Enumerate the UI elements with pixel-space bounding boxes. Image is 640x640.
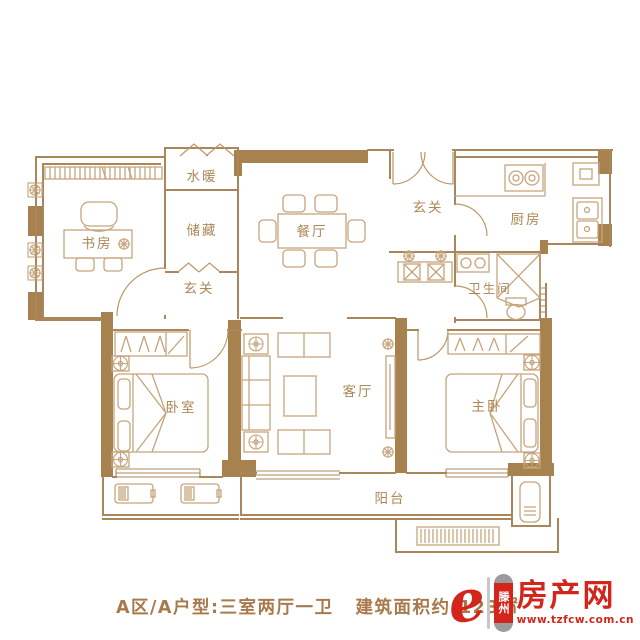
logo-e-mark-icon: e bbox=[444, 571, 488, 632]
water-heating-vent bbox=[180, 144, 234, 156]
hall-cabinet bbox=[398, 262, 452, 282]
sliding-door-balcony bbox=[256, 471, 340, 479]
caption-unit-info: A区/A户型:三室两厅一卫 bbox=[116, 598, 333, 618]
kitchen-counter bbox=[455, 163, 602, 242]
room-label-balcony: 阳台 bbox=[375, 491, 406, 507]
logo-city-name: 滕州 bbox=[494, 583, 513, 623]
plant-icon bbox=[382, 338, 394, 350]
doors bbox=[117, 144, 487, 368]
radiator-icon bbox=[28, 266, 42, 280]
ac-unit bbox=[181, 484, 221, 503]
plant-icon bbox=[118, 238, 130, 250]
bedroom-wardrobe bbox=[115, 332, 187, 356]
lamp-icon bbox=[114, 453, 128, 467]
radiator-icon bbox=[28, 243, 42, 257]
tv-cabinet bbox=[386, 356, 395, 438]
lamp-icon bbox=[525, 454, 539, 468]
logo-site-name: 房产网 bbox=[517, 580, 616, 613]
master-wardrobe bbox=[448, 334, 540, 354]
lamp-icon bbox=[249, 337, 263, 351]
lamp-icon bbox=[249, 435, 263, 449]
room-label-bathroom: 卫生间 bbox=[468, 281, 512, 296]
room-label-kitchen: 厨房 bbox=[511, 212, 542, 228]
floor-plan: 书房 水暖 储藏 餐厅 玄关 厨房 卫生间 玄关 卧室 客厅 主卧 阳台 bbox=[0, 0, 640, 640]
bookshelf bbox=[45, 167, 162, 179]
radiator-icon bbox=[28, 183, 42, 197]
storage-folding-door bbox=[178, 263, 220, 272]
plant-icon bbox=[382, 446, 394, 458]
room-label-water: 水暖 bbox=[187, 169, 218, 185]
lamp-icon bbox=[525, 356, 539, 370]
entry-door-right bbox=[421, 152, 453, 184]
bedroom-door bbox=[190, 330, 228, 368]
room-label-master: 主卧 bbox=[472, 399, 503, 415]
entry-door-left bbox=[393, 152, 425, 184]
capsule-bottom-cap bbox=[494, 623, 513, 632]
logo-city-capsule: 滕州 bbox=[494, 574, 513, 632]
windows bbox=[116, 288, 546, 479]
balcony-walls bbox=[103, 476, 558, 552]
study-door bbox=[117, 268, 165, 316]
ac-unit bbox=[115, 484, 155, 503]
kitchen-door bbox=[455, 204, 487, 236]
room-label-storage: 储藏 bbox=[187, 223, 218, 239]
water-heater bbox=[520, 482, 540, 522]
master-door bbox=[418, 330, 448, 360]
bedroom-window bbox=[116, 469, 200, 477]
room-labels: 书房 水暖 储藏 餐厅 玄关 厨房 卫生间 玄关 卧室 客厅 主卧 阳台 bbox=[82, 169, 542, 507]
balcony-grille bbox=[417, 527, 499, 545]
site-logo: e 滕州 房产网 www.tzfcw.com.cn bbox=[448, 572, 634, 634]
room-label-living: 客厅 bbox=[343, 383, 374, 400]
logo-site-url: www.tzfcw.com.cn bbox=[517, 614, 634, 626]
room-label-study: 书房 bbox=[82, 236, 113, 252]
capsule-top-cap bbox=[494, 574, 513, 583]
room-label-hallway: 玄关 bbox=[184, 280, 215, 297]
floor-plan-page: 书房 水暖 储藏 餐厅 玄关 厨房 卫生间 玄关 卧室 客厅 主卧 阳台 A区/… bbox=[0, 0, 640, 640]
room-label-entry: 玄关 bbox=[413, 199, 444, 216]
room-label-dining: 餐厅 bbox=[297, 224, 328, 240]
room-label-bedroom: 卧室 bbox=[166, 399, 197, 416]
lamp-icon bbox=[114, 357, 128, 371]
master-window bbox=[446, 469, 508, 477]
